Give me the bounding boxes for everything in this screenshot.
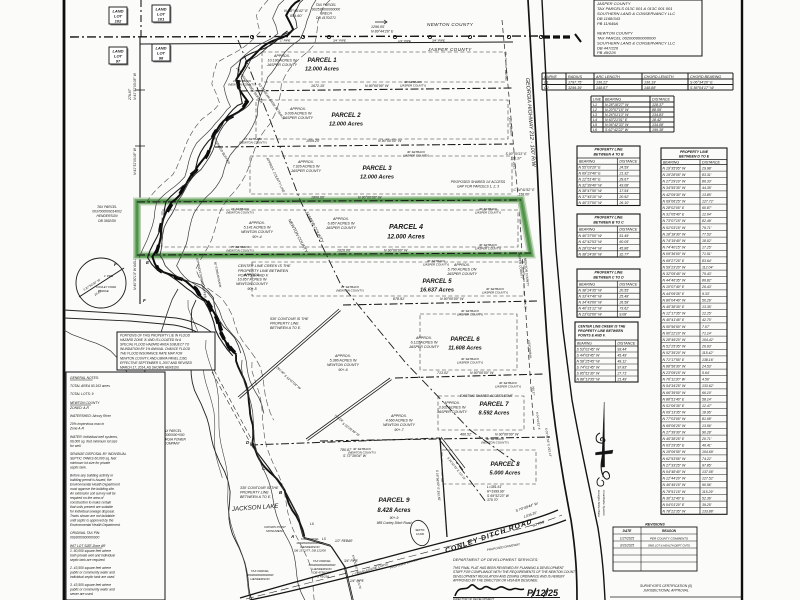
svg-text:DISTANCE: DISTANCE bbox=[619, 228, 638, 232]
svg-text:Coordinate System: Coordinate System bbox=[602, 490, 606, 516]
svg-text:138.16': 138.16' bbox=[702, 358, 714, 362]
svg-text:16.637 Acres: 16.637 Acres bbox=[420, 288, 454, 294]
svg-text:R=1999.99': R=1999.99' bbox=[487, 489, 505, 493]
svg-text:N 69°23'40" E: N 69°23'40" E bbox=[579, 172, 602, 176]
svg-text:N 12°51'40" E: N 12°51'40" E bbox=[579, 177, 602, 181]
svg-text:NEWTON COUNTY: NEWTON COUNTY bbox=[241, 230, 274, 234]
svg-text:(JASPER COUNTY): (JASPER COUNTY) bbox=[475, 211, 501, 215]
svg-text:3/4" PIPE: 3/4" PIPE bbox=[333, 39, 347, 43]
svg-text:13.35': 13.35' bbox=[702, 305, 712, 309]
svg-text:137.08': 137.08' bbox=[702, 470, 714, 474]
svg-text:Environmental Health Departmen: Environmental Health Department. bbox=[70, 523, 121, 527]
svg-text:N 38°24'30" W: N 38°24'30" W bbox=[579, 252, 603, 256]
svg-text:51.49': 51.49' bbox=[619, 234, 629, 238]
svg-text:N 90°00'00" W: N 90°00'00" W bbox=[440, 297, 464, 301]
svg-text:N 31°05'40" E: N 31°05'40" E bbox=[663, 213, 685, 217]
svg-text:6.857 ACRES IN: 6.857 ACRES IN bbox=[328, 222, 355, 226]
svg-text:An extension soil survey will: An extension soil survey will be bbox=[69, 492, 116, 496]
svg-text:379.70': 379.70' bbox=[487, 498, 498, 502]
svg-text:NEWTON COUNTY: NEWTON COUNTY bbox=[383, 423, 416, 427]
svg-text:N 60°22'10" W: N 60°22'10" W bbox=[663, 331, 686, 335]
svg-text:PROPERTY LINE: PROPERTY LINE bbox=[270, 322, 299, 326]
svg-text:DB 3692/59: DB 3692/59 bbox=[98, 219, 116, 223]
svg-text:N 79°51'15" W: N 79°51'15" W bbox=[663, 490, 686, 494]
svg-text:S 74°01'45" W: S 74°01'45" W bbox=[577, 366, 601, 370]
svg-text:81.08': 81.08' bbox=[702, 417, 712, 421]
svg-text:S 53°01'45" W: S 53°01'45" W bbox=[577, 348, 601, 352]
svg-text:JASPER COUNTY: JASPER COUNTY bbox=[290, 169, 322, 173]
svg-text:S 85°51'30" W: S 85°51'30" W bbox=[577, 372, 601, 376]
svg-text:115.42': 115.42' bbox=[702, 351, 713, 355]
svg-text:PARCEL 7: PARCEL 7 bbox=[479, 402, 509, 408]
svg-text:(JASPER COUNTY): (JASPER COUNTY) bbox=[457, 313, 483, 317]
svg-text:115.29': 115.29' bbox=[702, 490, 713, 494]
svg-text:88.59': 88.59' bbox=[652, 108, 662, 112]
svg-text:60,000 sq. feet minimum lot si: 60,000 sq. feet minimum lot size bbox=[70, 440, 117, 444]
svg-text:DEPARTMENT OF DEVELOPMENT SERV: DEPARTMENT OF DEVELOPMENT SERVICES: bbox=[453, 558, 539, 562]
svg-text:9.08': 9.08' bbox=[619, 313, 627, 317]
svg-text:INUNDATION BY 1% ANNUAL CHANCE: INUNDATION BY 1% ANNUAL CHANCE FLOOD bbox=[120, 347, 191, 351]
svg-text:1/4" PIPE: 1/4" PIPE bbox=[350, 579, 365, 583]
svg-text:JASPER COUNTY: JASPER COUNTY bbox=[427, 47, 472, 52]
svg-text:N 86°04'40" W: N 86°04'40" W bbox=[663, 298, 686, 302]
svg-text:133.88': 133.88' bbox=[702, 510, 714, 514]
svg-text:1797.75': 1797.75' bbox=[568, 80, 582, 84]
svg-text:PARCEL 8: PARCEL 8 bbox=[490, 462, 520, 468]
svg-text:530' CONTOUR IS THE: 530' CONTOUR IS THE bbox=[270, 317, 309, 321]
svg-text:3/4" PIPE: 3/4" PIPE bbox=[344, 559, 359, 563]
svg-text:45.49': 45.49' bbox=[617, 354, 627, 358]
svg-text:90+-9: 90+-9 bbox=[390, 516, 399, 520]
svg-text:83.31': 83.31' bbox=[702, 173, 712, 177]
svg-text:N 69°06'25" W: N 69°06'25" W bbox=[663, 424, 686, 428]
svg-text:4.660 ACRES IN: 4.660 ACRES IN bbox=[386, 419, 413, 423]
svg-text:878.91': 878.91' bbox=[393, 297, 405, 301]
svg-text:12.000 Acres: 12.000 Acres bbox=[387, 234, 425, 241]
svg-text:17.25': 17.25' bbox=[702, 246, 712, 250]
svg-text:3.932 ACRES IN: 3.932 ACRES IN bbox=[439, 406, 466, 410]
svg-text:Environmental Health Departmen: Environmental Health Department bbox=[70, 483, 121, 487]
svg-text:SPECIAL FLOOD HAZARD AREA SUBJ: SPECIAL FLOOD HAZARD AREA SUBJECT TO bbox=[120, 343, 190, 347]
svg-text:RADIUS: RADIUS bbox=[568, 75, 582, 79]
svg-text:PROPERTY LINE: PROPERTY LINE bbox=[240, 491, 269, 495]
svg-text:S 62°42'22" W: S 62°42'22" W bbox=[605, 128, 629, 132]
svg-text:N 19°35'05" W: N 19°35'05" W bbox=[663, 166, 686, 170]
svg-text:BETWEEN D TO E: BETWEEN D TO E bbox=[679, 155, 710, 159]
svg-text:N 28°02'44" W: N 28°02'44" W bbox=[579, 246, 603, 250]
svg-text:JURISDICTIONAL APPROVAL: JURISDICTIONAL APPROVAL bbox=[642, 588, 689, 592]
svg-text:148.88': 148.88' bbox=[644, 86, 656, 90]
svg-text:N 42°42'53" W: N 42°42'53" W bbox=[579, 240, 603, 244]
svg-text:Georgia State Plane: Georgia State Plane bbox=[597, 490, 601, 517]
svg-text:(JASPER COUNTY): (JASPER COUNTY) bbox=[403, 154, 429, 158]
svg-text:1296.05': 1296.05' bbox=[371, 25, 385, 29]
svg-text:TAX PARCEL: TAX PARCEL bbox=[97, 205, 117, 209]
svg-text:104.69': 104.69' bbox=[702, 450, 714, 454]
svg-text:25.48': 25.48' bbox=[618, 295, 629, 299]
svg-text:90.28': 90.28' bbox=[702, 430, 712, 434]
svg-text:building permit is issued, the: building permit is issued, the bbox=[70, 478, 112, 482]
svg-text:43.08': 43.08' bbox=[619, 183, 629, 187]
svg-text:JASPER COUNTY: JASPER COUNTY bbox=[266, 63, 298, 67]
svg-text:381.15': 381.15' bbox=[523, 300, 528, 310]
svg-text:PARCEL 1: PARCEL 1 bbox=[307, 58, 337, 64]
svg-text:S 56°04'17" W: S 56°04'17" W bbox=[690, 86, 714, 90]
svg-text:L6: L6 bbox=[310, 522, 314, 526]
svg-text:90.56': 90.56' bbox=[702, 483, 712, 487]
svg-text:5.141 ACRES IN: 5.141 ACRES IN bbox=[244, 226, 271, 230]
svg-text:N 28°49'20" W: N 28°49'20" W bbox=[663, 338, 686, 342]
svg-text:2. 43,500 square feet where: 2. 43,500 square feet where bbox=[69, 566, 111, 570]
svg-text:N 23°09'15" W: N 23°09'15" W bbox=[663, 371, 686, 375]
svg-text:BRIDGE: BRIDGE bbox=[98, 289, 109, 293]
svg-text:APPROX.: APPROX. bbox=[297, 160, 314, 164]
svg-text:PROPERTY LINE: PROPERTY LINE bbox=[680, 150, 709, 154]
svg-text:N 58°25'45" W: N 58°25'45" W bbox=[577, 360, 601, 364]
svg-text:A: A bbox=[290, 534, 294, 539]
svg-text:N 45°38'35" E: N 45°38'35" E bbox=[663, 305, 685, 309]
svg-text:N 12°44'20" W: N 12°44'20" W bbox=[663, 477, 686, 481]
svg-text:82.49': 82.49' bbox=[702, 219, 712, 223]
svg-text:26.43': 26.43' bbox=[701, 285, 712, 289]
svg-text:134.83': 134.83' bbox=[652, 113, 664, 117]
svg-text:REASON: REASON bbox=[662, 529, 677, 533]
svg-text:112.04': 112.04' bbox=[702, 265, 713, 269]
svg-text:(JASPER COUNTY): (JASPER COUNTY) bbox=[457, 361, 483, 365]
svg-text:N 54°34'25" W: N 54°34'25" W bbox=[663, 384, 686, 388]
svg-text:F: F bbox=[143, 298, 146, 303]
svg-text:86.33': 86.33' bbox=[702, 180, 712, 184]
svg-text:PROPOSED SHARED 14' ACCESS: PROPOSED SHARED 14' ACCESS bbox=[451, 180, 506, 184]
svg-text:N 89°44'26" E: N 89°44'26" E bbox=[371, 30, 394, 34]
svg-text:116.37': 116.37' bbox=[511, 156, 522, 160]
svg-text:(NEWTON COUNTY): (NEWTON COUNTY) bbox=[228, 83, 256, 87]
svg-text:58.14': 58.14' bbox=[702, 397, 712, 401]
svg-text:20.55': 20.55' bbox=[618, 289, 629, 293]
svg-text:N 12°17'35" W: N 12°17'35" W bbox=[663, 312, 686, 316]
svg-text:97.83': 97.83' bbox=[617, 366, 627, 370]
svg-text:74.22': 74.22' bbox=[702, 457, 712, 461]
svg-text:N 77°03'05" W: N 77°03'05" W bbox=[663, 417, 686, 421]
svg-text:104.42': 104.42' bbox=[702, 338, 714, 342]
svg-text:7.926 ACRES IN: 7.926 ACRES IN bbox=[293, 165, 320, 169]
svg-text:CHORD LENGTH: CHORD LENGTH bbox=[644, 75, 674, 79]
svg-text:PB 49/226: PB 49/226 bbox=[597, 50, 616, 55]
svg-text:N 90°00'00" W: N 90°00'00" W bbox=[365, 84, 389, 88]
svg-text:JASPER COUNTY: JASPER COUNTY bbox=[408, 345, 440, 349]
svg-text:73.62': 73.62' bbox=[619, 307, 629, 311]
svg-text:N 32°05'45" W: N 32°05'45" W bbox=[663, 272, 686, 276]
svg-text:DB 1571/77, DB 122/06: DB 1571/77, DB 122/06 bbox=[294, 549, 326, 553]
svg-text:JASPER COUNTY: JASPER COUNTY bbox=[325, 226, 357, 230]
svg-text:330' CONTOUR IS THE: 330' CONTOUR IS THE bbox=[240, 486, 279, 490]
svg-text:71.51': 71.51' bbox=[702, 252, 712, 256]
svg-text:DISTANCE: DISTANCE bbox=[619, 160, 638, 164]
svg-text:(NEWTON COUNTY): (NEWTON COUNTY) bbox=[239, 141, 267, 145]
svg-text:N 51°25'35" W: N 51°25'35" W bbox=[663, 345, 686, 349]
svg-text:8.592 Acres: 8.592 Acres bbox=[479, 411, 510, 417]
svg-text:N 10°07'40" E: N 10°07'40" E bbox=[663, 285, 685, 289]
svg-text:APPROVED BY THE DIRECTOR OR HI: APPROVED BY THE DIRECTOR OR HIS/HER DESI… bbox=[452, 579, 538, 583]
svg-text:(NEWTON COUNTY): (NEWTON COUNTY) bbox=[481, 441, 509, 445]
svg-text:18.02': 18.02' bbox=[702, 239, 712, 243]
svg-text:NEWTON COUNTY: NEWTON COUNTY bbox=[236, 282, 269, 286]
svg-text:both private well and individu: both private well and individual bbox=[70, 554, 115, 558]
svg-text:5.000 Acres: 5.000 Acres bbox=[490, 471, 521, 477]
svg-text:N 09°13'35" W: N 09°13'35" W bbox=[663, 411, 686, 415]
svg-text:24.53': 24.53' bbox=[701, 364, 712, 368]
svg-text:199.38': 199.38' bbox=[652, 128, 664, 132]
svg-text:N 04°01'20" E: N 04°01'20" E bbox=[663, 503, 685, 507]
svg-text:N 51°03'15" W: N 51°03'15" W bbox=[663, 226, 686, 230]
svg-text:PARCEL 4: PARCEL 4 bbox=[389, 224, 423, 231]
svg-text:20.92': 20.92' bbox=[618, 195, 629, 199]
svg-text:66.10': 66.10' bbox=[702, 391, 712, 395]
svg-text:S 69°52'23" W: S 69°52'23" W bbox=[487, 494, 510, 498]
svg-text:BETWEEN A TO B: BETWEEN A TO B bbox=[593, 152, 623, 156]
svg-text:12.04': 12.04' bbox=[702, 213, 712, 217]
svg-text:18.95': 18.95' bbox=[702, 411, 712, 415]
svg-text:127.52': 127.52' bbox=[702, 477, 714, 481]
svg-text:L2: L2 bbox=[593, 108, 597, 112]
svg-text:NEWTON COUNTY: NEWTON COUNTY bbox=[427, 22, 474, 27]
svg-text:N 90°00'00" W: N 90°00'00" W bbox=[384, 249, 408, 253]
svg-text:PROPERTY LINE BETWEEN: PROPERTY LINE BETWEEN bbox=[578, 329, 624, 333]
svg-text:septic tank.: septic tank. bbox=[70, 466, 87, 470]
svg-text:93.44': 93.44' bbox=[617, 348, 627, 352]
svg-text:N 32°39'40" W: N 32°39'40" W bbox=[579, 183, 603, 187]
svg-text:1806.00': 1806.00' bbox=[311, 196, 325, 200]
svg-text:CURVE: CURVE bbox=[544, 75, 557, 79]
svg-text:N 23°02'00" W: N 23°02'00" W bbox=[579, 313, 603, 317]
svg-text:50.26': 50.26' bbox=[702, 298, 712, 302]
svg-text:that soils present are suitabl: that soils present are suitable bbox=[70, 505, 113, 509]
svg-text:L6: L6 bbox=[593, 128, 597, 132]
svg-text:N 04°48'40" W: N 04°48'40" W bbox=[663, 470, 686, 474]
svg-text:N 28°02'05" E: N 28°02'05" E bbox=[663, 206, 685, 210]
svg-text:N 40°37'00" W: N 40°37'00" W bbox=[579, 201, 603, 205]
svg-text:278.87': 278.87' bbox=[128, 89, 132, 101]
svg-text:BETWEEN A TO E.: BETWEEN A TO E. bbox=[240, 495, 271, 499]
svg-text:N 62°53'55" W: N 62°53'55" W bbox=[663, 457, 686, 461]
svg-text:NEWTON COUNTY, AND LIBRIA PANE: NEWTON COUNTY, AND LIBRIA PANEL 2160, bbox=[120, 356, 187, 360]
svg-text:N 76°11'20" W: N 76°11'20" W bbox=[663, 378, 686, 382]
svg-text:POINTS E AND F.: POINTS E AND F. bbox=[578, 333, 606, 337]
svg-text:public or community water and: public or community water and bbox=[69, 571, 115, 575]
svg-text:6.122 ACRES IN: 6.122 ACRES IN bbox=[411, 341, 438, 345]
svg-text:N 90°00'00" W: N 90°00'00" W bbox=[378, 139, 402, 143]
svg-text:JASPER COUNTY: JASPER COUNTY bbox=[446, 272, 478, 276]
svg-text:HENDERSON: HENDERSON bbox=[96, 214, 118, 218]
svg-text:8.428 Acres: 8.428 Acres bbox=[377, 508, 411, 514]
svg-text:public or community water and: public or community water and bbox=[69, 588, 115, 592]
svg-text:APPROX.: APPROX. bbox=[334, 354, 351, 358]
svg-text:JASPER COUNTY: JASPER COUNTY bbox=[436, 410, 468, 414]
svg-text:10,000: 10,000 bbox=[416, 532, 424, 536]
svg-text:768.37': 768.37' bbox=[531, 386, 536, 396]
svg-text:TOTAL LOTS: 9: TOTAL LOTS: 9 bbox=[70, 392, 94, 396]
svg-text:S 00°00'13" E: S 00°00'13" E bbox=[506, 152, 528, 156]
svg-text:NEWTON COUNTY: NEWTON COUNTY bbox=[70, 401, 100, 405]
svg-text:EXISTING SHARED ACCESS ESMT: EXISTING SHARED ACCESS ESMT bbox=[460, 394, 514, 398]
svg-text:N 71°17'55" E: N 71°17'55" E bbox=[663, 358, 685, 362]
svg-text:BEARING: BEARING bbox=[579, 160, 595, 164]
svg-text:32.77': 32.77' bbox=[619, 252, 629, 256]
svg-text:F: F bbox=[114, 262, 117, 267]
svg-text:79.71': 79.71' bbox=[702, 226, 712, 230]
svg-text:17.54': 17.54' bbox=[619, 189, 629, 193]
svg-text:APPROX.: APPROX. bbox=[289, 107, 306, 111]
svg-text:for individual sewage disposal: for individual sewage disposal. bbox=[70, 510, 115, 514]
svg-text:148.87': 148.87' bbox=[596, 86, 608, 90]
svg-text:L5: L5 bbox=[593, 123, 597, 127]
svg-text:construction to make certain: construction to make certain bbox=[70, 501, 111, 505]
svg-text:BEARING: BEARING bbox=[663, 160, 679, 164]
svg-text:EFFECTIVE SEPTEMBER 5, 2007 AN: EFFECTIVE SEPTEMBER 5, 2007 AND REVISED bbox=[120, 361, 193, 365]
svg-text:N 27°33'25" W: N 27°33'25" W bbox=[663, 463, 686, 467]
svg-text:86.82': 86.82' bbox=[702, 279, 712, 283]
svg-text:1/2" REBAR: 1/2" REBAR bbox=[335, 539, 353, 543]
svg-text:DATE: DATE bbox=[623, 529, 633, 533]
svg-text:CENTER LINE CREEK IS THE: CENTER LINE CREEK IS THE bbox=[578, 324, 626, 328]
svg-text:CHORD BEARING: CHORD BEARING bbox=[690, 75, 721, 79]
svg-text:ARC LENGTH: ARC LENGTH bbox=[595, 75, 620, 79]
svg-text:3. 43,500 square feet where: 3. 43,500 square feet where bbox=[70, 583, 111, 587]
svg-text:29.98': 29.98' bbox=[701, 166, 712, 170]
svg-text:21.49': 21.49' bbox=[616, 378, 627, 382]
svg-text:C 64°41'52" E: C 64°41'52" E bbox=[513, 188, 535, 192]
svg-text:N 63°21'01" E: N 63°21'01" E bbox=[605, 118, 628, 122]
svg-text:LINE: LINE bbox=[593, 98, 602, 102]
svg-text:97.85': 97.85' bbox=[702, 463, 712, 467]
svg-text:PARCEL 3: PARCEL 3 bbox=[362, 166, 392, 172]
svg-text:Zone A-R: Zone A-R bbox=[69, 427, 85, 431]
svg-text:APPROX.: APPROX. bbox=[332, 217, 349, 221]
svg-text:136.22': 136.22' bbox=[596, 80, 608, 84]
svg-text:N 19°28'05" W: N 19°28'05" W bbox=[663, 173, 686, 177]
svg-text:10.190 ACRES IN: 10.190 ACRES IN bbox=[268, 59, 297, 63]
svg-text:minimum lot size for private: minimum lot size for private bbox=[70, 461, 110, 465]
svg-text:(JASPER COUNTY): (JASPER COUNTY) bbox=[495, 385, 521, 389]
svg-text:L=381.61': L=381.61' bbox=[487, 485, 502, 489]
svg-text:97: 97 bbox=[116, 59, 121, 64]
svg-text:N 26°01'13" W: N 26°01'13" W bbox=[605, 113, 629, 117]
svg-text:29.67': 29.67' bbox=[618, 177, 629, 181]
svg-text:27.71': 27.71' bbox=[616, 372, 627, 376]
svg-text:BEARING: BEARING bbox=[579, 228, 595, 232]
svg-text:N 20°07'15" W: N 20°07'15" W bbox=[605, 108, 629, 112]
svg-text:BEARING: BEARING bbox=[577, 342, 592, 346]
svg-text:N 90°00'00" W: N 90°00'00" W bbox=[470, 371, 494, 375]
svg-text:101: 101 bbox=[158, 17, 165, 22]
svg-text:septic tank are required.: septic tank are required. bbox=[70, 558, 105, 562]
svg-text:WATER: Individual well systems: WATER: Individual well systems, bbox=[70, 435, 118, 439]
svg-text:N 38°24'35" W: N 38°24'35" W bbox=[579, 289, 603, 293]
svg-text:26.63': 26.63' bbox=[701, 345, 712, 349]
svg-text:N 73°07'15" W: N 73°07'15" W bbox=[663, 219, 686, 223]
svg-text:134.08': 134.08' bbox=[652, 123, 664, 127]
svg-text:PROPERTY LINE: PROPERTY LINE bbox=[594, 216, 623, 220]
svg-text:44.35': 44.35' bbox=[702, 186, 712, 190]
svg-text:5.64': 5.64' bbox=[702, 371, 710, 375]
svg-text:APPROX.: APPROX. bbox=[453, 263, 470, 267]
svg-text:N 44°09'35" E: N 44°09'35" E bbox=[663, 292, 685, 296]
svg-text:HENDERSON: HENDERSON bbox=[250, 577, 270, 581]
svg-text:90+-7: 90+-7 bbox=[394, 428, 404, 432]
svg-text:N 74°40'15" W: N 74°40'15" W bbox=[663, 246, 686, 250]
svg-text:4.56': 4.56' bbox=[702, 378, 710, 382]
svg-text:11.608 Acres: 11.608 Acres bbox=[448, 346, 482, 352]
svg-text:N 69°27'25" E: N 69°27'25" E bbox=[663, 259, 685, 263]
svg-text:N 59°23'20" W: N 59°23'20" W bbox=[663, 265, 686, 269]
svg-text:GAP FOR PARCELS 1, 2, 3: GAP FOR PARCELS 1, 2, 3 bbox=[457, 184, 499, 188]
svg-text:20.71': 20.71' bbox=[701, 437, 712, 441]
svg-text:SEPTIC TANKS 60,000 sq. feet: SEPTIC TANKS 60,000 sq. feet bbox=[70, 457, 117, 461]
svg-text:N 90°00'00" W: N 90°00'00" W bbox=[358, 196, 382, 200]
svg-text:SURVEYOR'S CERTIFICATION (0): SURVEYOR'S CERTIFICATION (0) bbox=[640, 584, 692, 588]
svg-text:N 41°51'05.05" W: N 41°51'05.05" W bbox=[133, 72, 137, 100]
svg-text:Before any building activity o: Before any building activity or bbox=[70, 474, 114, 478]
svg-text:required on the area of: required on the area of bbox=[70, 496, 104, 500]
svg-text:1672.15': 1672.15' bbox=[311, 84, 325, 88]
svg-text:JASPER COUNTY: JASPER COUNTY bbox=[282, 116, 314, 120]
svg-text:1" PIPE: 1" PIPE bbox=[280, 39, 291, 43]
svg-text:45.86': 45.86' bbox=[619, 246, 629, 250]
svg-text:APPROX.: APPROX. bbox=[248, 221, 265, 225]
svg-text:985 Conley Ditch Road: 985 Conley Ditch Road bbox=[377, 521, 412, 525]
svg-text:N 63°29'35" E: N 63°29'35" E bbox=[663, 444, 685, 448]
svg-text:26.10': 26.10' bbox=[618, 201, 629, 205]
svg-text:N 88°13'35" W: N 88°13'35" W bbox=[577, 378, 601, 382]
svg-text:60.87': 60.87' bbox=[702, 206, 712, 210]
svg-text:GENERAL NOTES:: GENERAL NOTES: bbox=[70, 376, 99, 380]
svg-text:12.47': 12.47' bbox=[702, 404, 712, 408]
svg-text:L3: L3 bbox=[593, 113, 597, 117]
svg-text:must approve the building site: must approve the building site. bbox=[70, 487, 115, 491]
svg-text:(JASPER COUNTY): (JASPER COUNTY) bbox=[423, 263, 449, 267]
svg-text:until septic is approved by th: until septic is approved by the bbox=[70, 519, 114, 523]
svg-text:(JASPER COUNTY): (JASPER COUNTY) bbox=[475, 247, 501, 251]
svg-text:52.36': 52.36' bbox=[702, 496, 712, 500]
svg-text:PARCEL 9: PARCEL 9 bbox=[378, 497, 409, 504]
svg-text:REVISIONS: REVISIONS bbox=[645, 523, 665, 527]
svg-text:N 37°45'10" W: N 37°45'10" W bbox=[579, 195, 603, 199]
svg-text:CENTER LINE CREEK IS THE: CENTER LINE CREEK IS THE bbox=[238, 264, 291, 268]
svg-text:N 88°56'30" W: N 88°56'30" W bbox=[663, 364, 686, 368]
svg-text:N 41°51'05.05" W: N 41°51'05.05" W bbox=[133, 147, 137, 175]
svg-text:N 69°06'25" W: N 69°06'25" W bbox=[663, 199, 686, 203]
svg-text:S 44°03'45" W: S 44°03'45" W bbox=[577, 354, 601, 358]
svg-text:NEWTON COUNTY: NEWTON COUNTY bbox=[327, 363, 360, 367]
svg-text:(NEWTON COUNTY): (NEWTON COUNTY) bbox=[348, 451, 376, 455]
svg-text:DISTANCE: DISTANCE bbox=[619, 283, 638, 287]
svg-text:HAZARD ZONE 'A' AND IS LOCATED: HAZARD ZONE 'A' AND IS LOCATED IN A bbox=[120, 338, 181, 342]
svg-text:N 42°09'30" W: N 42°09'30" W bbox=[663, 193, 686, 197]
svg-text:(NEWTON COUNTY): (NEWTON COUNTY) bbox=[226, 249, 254, 253]
svg-text:APPROX.: APPROX. bbox=[273, 54, 290, 58]
svg-text:N 30°12'40" E: N 30°12'40" E bbox=[663, 496, 685, 500]
svg-text:N 55°03'20" E: N 55°03'20" E bbox=[579, 166, 602, 170]
svg-text:13.56': 13.56' bbox=[702, 424, 712, 428]
svg-text:APPROX.: APPROX. bbox=[243, 273, 260, 277]
svg-text:N 19°06'55" W: N 19°06'55" W bbox=[663, 450, 686, 454]
svg-text:COMPANY: COMPANY bbox=[164, 442, 181, 446]
svg-text:158.00': 158.00' bbox=[518, 192, 529, 196]
svg-text:L4: L4 bbox=[593, 118, 597, 122]
svg-text:THE FLOOD INSURANCE RATE MAP F: THE FLOOD INSURANCE RATE MAP FOR bbox=[120, 352, 183, 356]
svg-text:1009.20': 1009.20' bbox=[306, 139, 320, 143]
svg-text:12.000 Acres: 12.000 Acres bbox=[360, 175, 394, 181]
